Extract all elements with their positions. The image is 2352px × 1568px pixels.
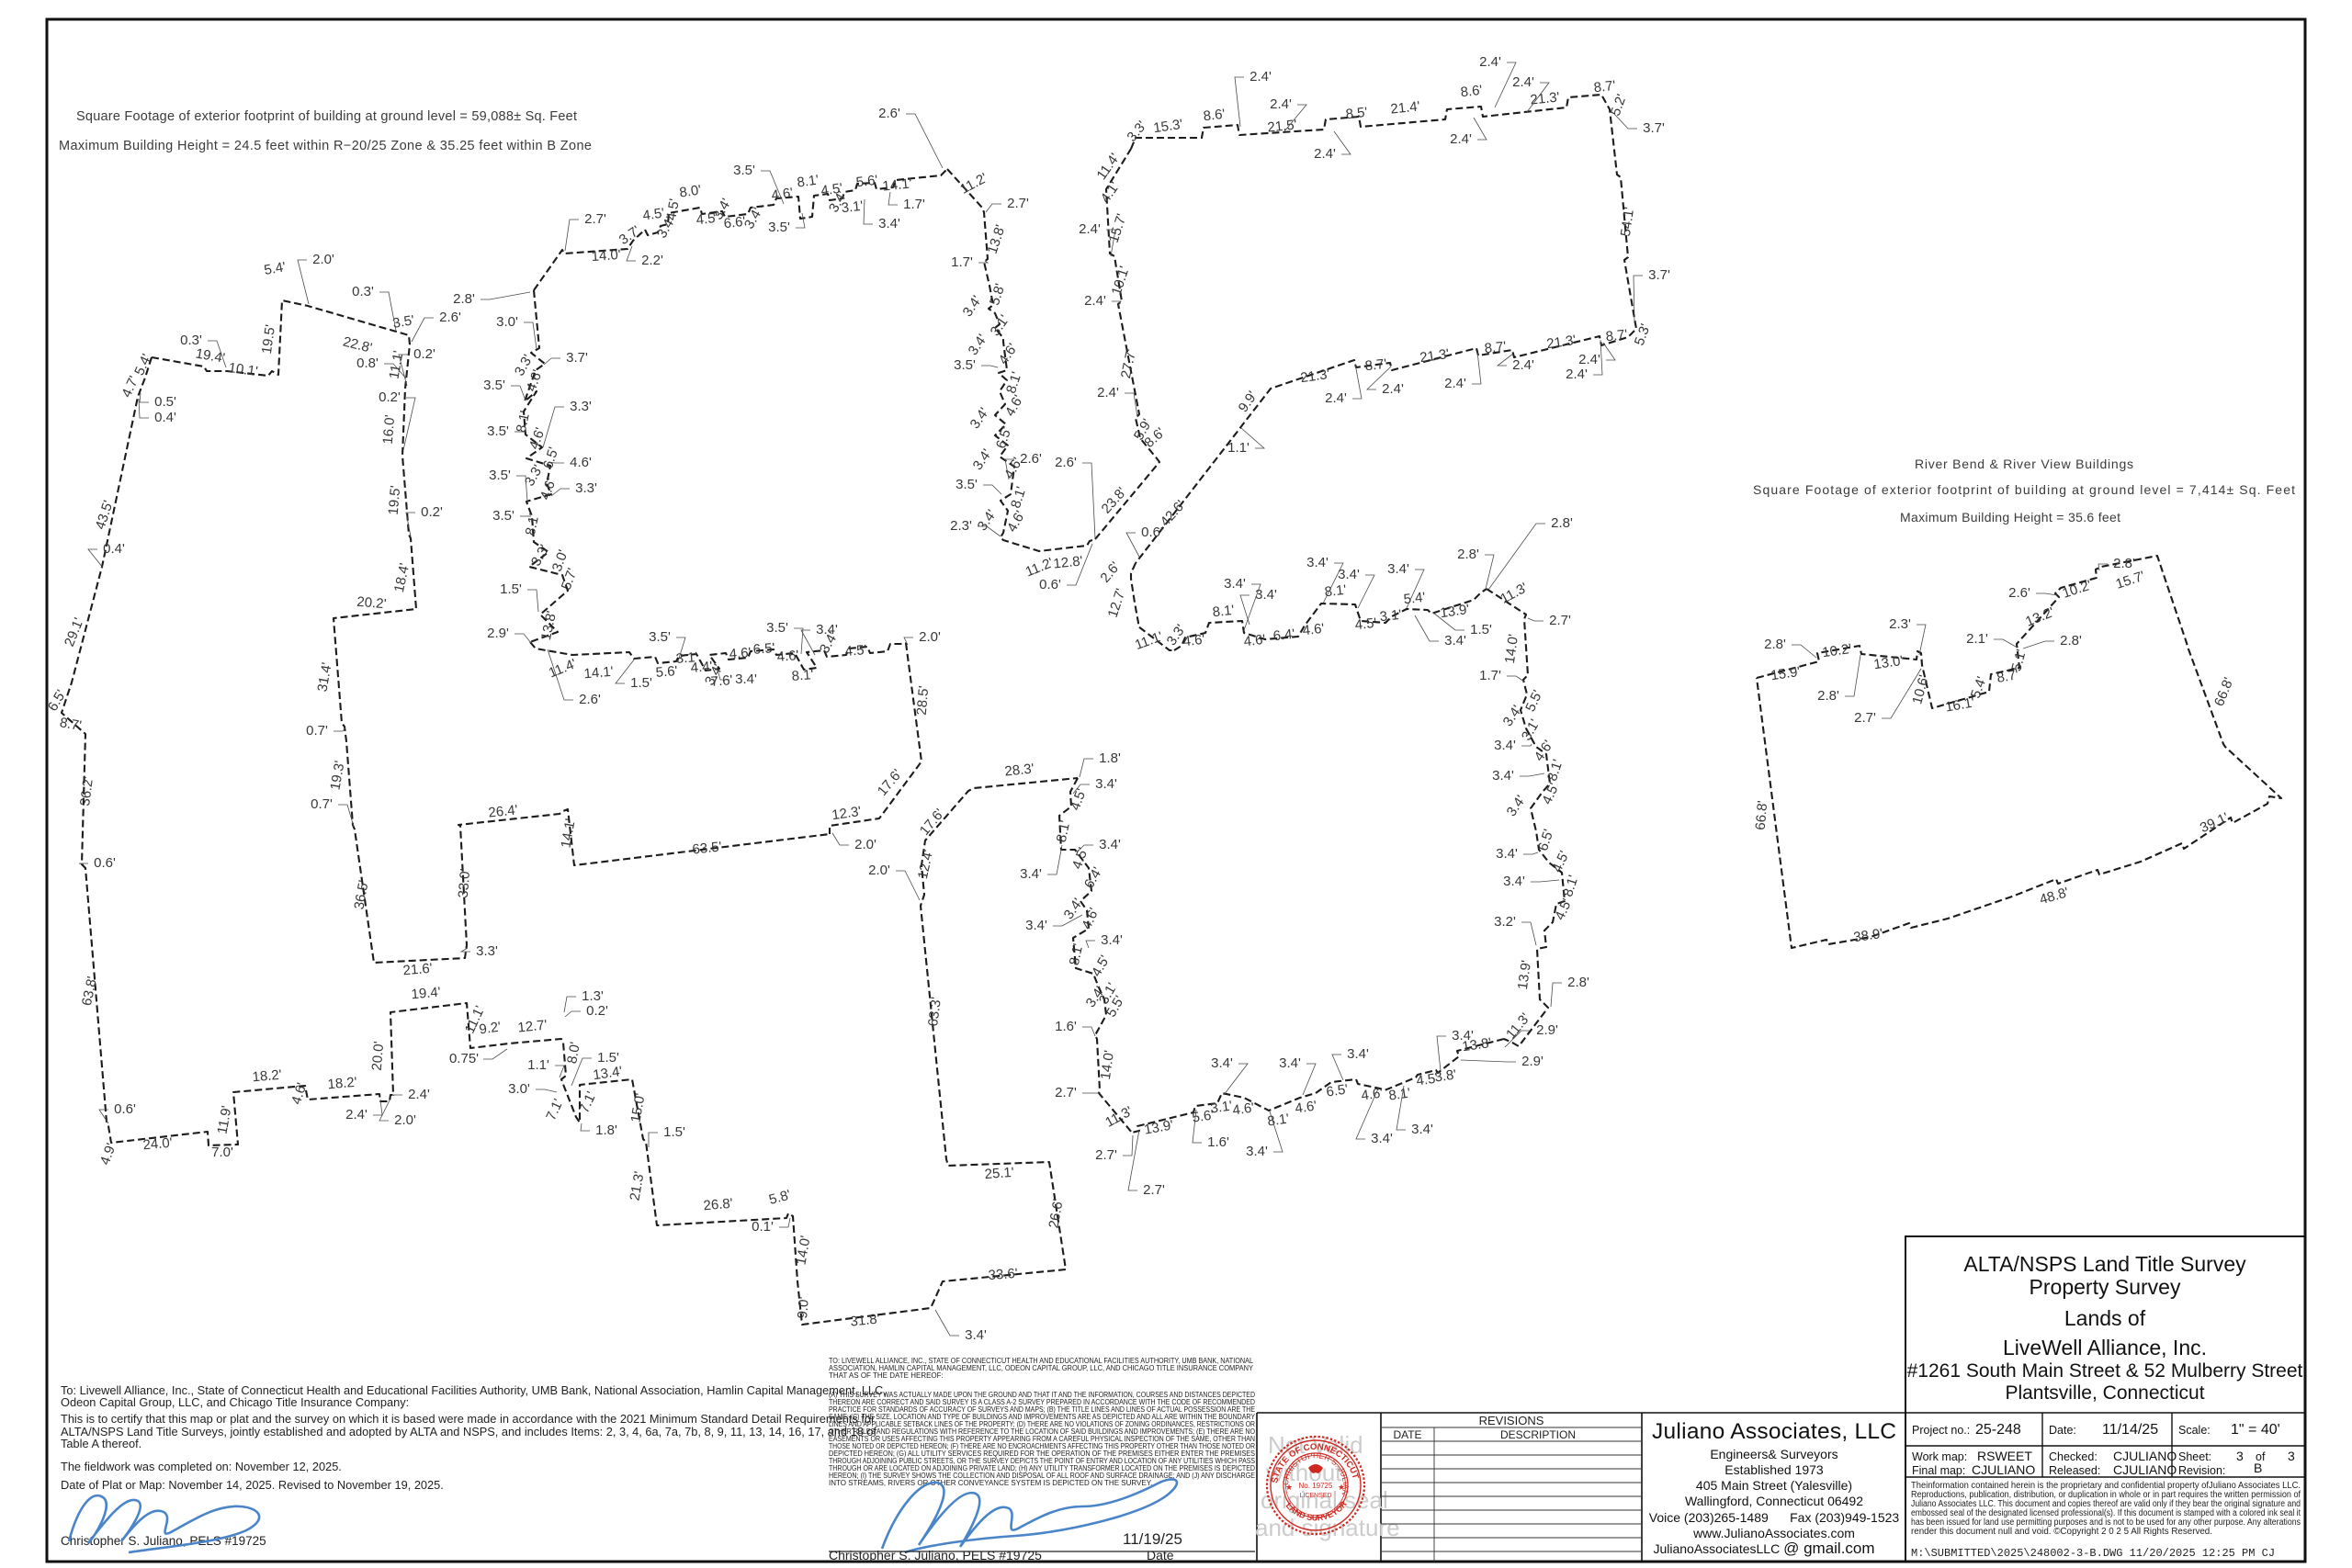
svg-text:4.6': 4.6' <box>1231 1100 1255 1118</box>
svg-text:2.4': 2.4' <box>1512 74 1534 90</box>
svg-text:1.7': 1.7' <box>903 197 925 212</box>
svg-text:63.5': 63.5' <box>692 839 723 857</box>
svg-text:JulianoAssociatesLLC @ gmail.c: JulianoAssociatesLLC @ gmail.com <box>1653 1540 1874 1557</box>
svg-text:4.6': 4.6' <box>1243 632 1266 649</box>
svg-text:2.0': 2.0' <box>854 837 876 852</box>
svg-text:Date of Plat or Map: November: Date of Plat or Map: November 14, 2025. … <box>61 1478 444 1492</box>
svg-text:3.4': 3.4' <box>878 216 900 231</box>
svg-text:2.4': 2.4' <box>408 1087 430 1102</box>
svg-text:6.5': 6.5' <box>1325 1081 1349 1100</box>
svg-text:No. 19725: No. 19725 <box>1299 1482 1333 1490</box>
svg-text:2.6': 2.6' <box>2008 585 2030 601</box>
svg-text:DESCRIPTION: DESCRIPTION <box>1500 1428 1576 1441</box>
svg-text:19.4': 19.4' <box>411 985 442 1003</box>
svg-text:1.5': 1.5' <box>597 1050 619 1066</box>
svg-text:4.6': 4.6' <box>776 648 799 665</box>
svg-text:RSWEET: RSWEET <box>1977 1449 2032 1463</box>
svg-text:3.4': 3.4' <box>1211 1055 1233 1071</box>
svg-text:3.4': 3.4' <box>965 1327 987 1343</box>
svg-text:The fieldwork was completed on: The fieldwork was completed on: November… <box>61 1460 342 1473</box>
svg-text:21.3': 21.3' <box>1530 89 1561 107</box>
svg-text:2.8': 2.8' <box>1551 515 1573 531</box>
svg-text:3.4': 3.4' <box>1494 738 1516 753</box>
svg-text:Square Footage of exterior foo: Square Footage of exterior footprint of … <box>1753 482 2295 497</box>
svg-text:8.5': 8.5' <box>1345 105 1368 122</box>
svg-text:2.4': 2.4' <box>1079 221 1101 237</box>
svg-text:Maximum Building Height = 35.6: Maximum Building Height = 35.6 feet <box>1900 510 2120 525</box>
svg-text:2.4': 2.4' <box>345 1107 367 1122</box>
svg-text:Square Footage of exterior foo: Square Footage of exterior footprint of … <box>76 109 577 124</box>
svg-text:8.1': 8.1' <box>1387 1085 1411 1103</box>
svg-text:original seal: original seal <box>1261 1486 1388 1514</box>
svg-text:8.1': 8.1' <box>1324 582 1347 600</box>
svg-text:3.4': 3.4' <box>1496 846 1518 862</box>
svg-text:0.7': 0.7' <box>311 796 333 812</box>
svg-text:4.6': 4.6' <box>570 455 592 470</box>
svg-text:2.4': 2.4' <box>1270 96 1292 112</box>
svg-text:1.6': 1.6' <box>1207 1134 1229 1150</box>
svg-text:DATE: DATE <box>1393 1428 1421 1441</box>
svg-text:2.0': 2.0' <box>312 252 334 267</box>
svg-text:ALTA/NSPS Land Title Surveys,: ALTA/NSPS Land Title Surveys, jointly es… <box>61 1425 876 1438</box>
svg-text:3.4': 3.4' <box>1306 555 1329 570</box>
svg-text:0.6': 0.6' <box>114 1101 136 1117</box>
svg-text:Voice (203)265-1489 Fax (: Voice (203)265-1489 Fax (203)949-1523 <box>1649 1510 1900 1525</box>
svg-text:2.4': 2.4' <box>1084 293 1106 309</box>
svg-text:2.7': 2.7' <box>1095 1147 1117 1163</box>
svg-text:2.4': 2.4' <box>1382 381 1404 397</box>
svg-text:3.4': 3.4' <box>1411 1122 1433 1137</box>
svg-text:2.6': 2.6' <box>1055 455 1077 470</box>
svg-text:This is to certify that this m: This is to certify that this map or plat… <box>61 1412 876 1426</box>
svg-text:3.4': 3.4' <box>1095 776 1117 792</box>
svg-text:3.4': 3.4' <box>1503 874 1525 889</box>
svg-text:3.3': 3.3' <box>476 943 498 959</box>
svg-text:3.4': 3.4' <box>1224 576 1246 592</box>
svg-text:River Bend & River View Buildi: River Bend & River View Buildings <box>1915 457 2133 471</box>
svg-text:2.0': 2.0' <box>868 863 890 878</box>
svg-text:9.0': 9.0' <box>795 1296 812 1319</box>
svg-text:★: ★ <box>1285 1483 1293 1492</box>
svg-text:2.7': 2.7' <box>1143 1182 1165 1198</box>
svg-text:0.6': 0.6' <box>1141 525 1163 540</box>
svg-text:3.4': 3.4' <box>1099 837 1121 852</box>
svg-text:3.4': 3.4' <box>1347 1046 1369 1062</box>
svg-text:Lands of: Lands of <box>2064 1306 2146 1330</box>
svg-text:5.6': 5.6' <box>855 173 878 190</box>
svg-text:2.7': 2.7' <box>1549 613 1571 628</box>
svg-text:Christopher S. Juliano, PELS #: Christopher S. Juliano, PELS #19725 <box>829 1548 1042 1562</box>
svg-text:1.3': 1.3' <box>582 988 604 1004</box>
svg-text:8.7': 8.7' <box>1593 78 1616 96</box>
svg-text:11/14/25: 11/14/25 <box>2102 1422 2158 1438</box>
svg-text:1.5': 1.5' <box>663 1124 685 1140</box>
svg-text:1" = 40': 1" = 40' <box>2231 1422 2280 1438</box>
svg-text:Project no.:: Project no.: <box>1912 1424 1970 1437</box>
svg-text:2.7': 2.7' <box>1007 196 1029 211</box>
svg-text:Wallingford, Connecticut 06492: Wallingford, Connecticut 06492 <box>1685 1494 1863 1508</box>
svg-text:Sheet:: Sheet: <box>2178 1450 2211 1463</box>
svg-text:9.2': 9.2' <box>478 1019 502 1037</box>
svg-text:2.6': 2.6' <box>439 310 461 325</box>
svg-text:8.0': 8.0' <box>678 182 702 200</box>
svg-text:28.5': 28.5' <box>914 685 933 716</box>
svg-text:2.4': 2.4' <box>1479 54 1501 70</box>
svg-text:3.4': 3.4' <box>1371 1131 1393 1146</box>
svg-text:0.1': 0.1' <box>752 1219 774 1235</box>
svg-text:3.5': 3.5' <box>954 357 976 373</box>
svg-text:Final map:: Final map: <box>1912 1464 1965 1477</box>
svg-text:2.8': 2.8' <box>1764 637 1786 652</box>
svg-text:4.5': 4.5' <box>1354 615 1377 633</box>
svg-text:2.8': 2.8' <box>1817 688 1839 704</box>
svg-text:3.4': 3.4' <box>1101 932 1123 948</box>
svg-text:2.9': 2.9' <box>1536 1022 1558 1038</box>
svg-text:Scale:: Scale: <box>2178 1424 2211 1437</box>
svg-text:Plantsville, Connecticut: Plantsville, Connecticut <box>2005 1382 2204 1404</box>
svg-text:0.2': 0.2' <box>421 504 443 520</box>
svg-text:2.0': 2.0' <box>394 1112 416 1128</box>
svg-text:2.8': 2.8' <box>1567 975 1589 990</box>
svg-text:0.6': 0.6' <box>94 855 116 871</box>
svg-text:INTO STREAMS, RIVERS OR OTHER: INTO STREAMS, RIVERS OR OTHER CONVEYANCE… <box>829 1479 1152 1487</box>
svg-text:Work map:: Work map: <box>1912 1450 1967 1463</box>
svg-text:4.6': 4.6' <box>1302 621 1325 638</box>
svg-text:Engineers& Surveyors: Engineers& Surveyors <box>1710 1447 1837 1461</box>
svg-text:12.7': 12.7' <box>517 1017 548 1035</box>
svg-text:CJULIANO: CJULIANO <box>2113 1449 2177 1463</box>
svg-text:LICENSED: LICENSED <box>1299 1493 1331 1499</box>
svg-text:16.0': 16.0' <box>380 414 399 446</box>
svg-text:3.7': 3.7' <box>566 350 588 366</box>
svg-text:1.5': 1.5' <box>1470 622 1492 637</box>
svg-text:3.8': 3.8' <box>1433 1066 1457 1085</box>
svg-text:3.3': 3.3' <box>570 399 592 414</box>
svg-text:1.1': 1.1' <box>1227 440 1249 456</box>
svg-text:11/19/25: 11/19/25 <box>1123 1530 1182 1548</box>
svg-text:2.9': 2.9' <box>1521 1054 1543 1069</box>
svg-text:Juliano Associates, LLC: Juliano Associates, LLC <box>1652 1419 1896 1444</box>
svg-text:1.8': 1.8' <box>595 1122 617 1138</box>
svg-text:1.7': 1.7' <box>1479 668 1501 683</box>
svg-text:25.1': 25.1' <box>984 1165 1014 1182</box>
svg-text:M:\SUBMITTED\2025\248002-3-B.D: M:\SUBMITTED\2025\248002-3-B.DWG 11/20/2… <box>1911 1547 2275 1560</box>
svg-text:2.4': 2.4' <box>1314 146 1336 162</box>
svg-text:Odeon Capital Group, LLC, and: Odeon Capital Group, LLC, and Chicago Ti… <box>61 1395 409 1409</box>
svg-text:21.5': 21.5' <box>1267 117 1298 135</box>
svg-text:0.6': 0.6' <box>1039 577 1061 592</box>
svg-text:3.5': 3.5' <box>487 423 509 439</box>
svg-text:Date:: Date: <box>2049 1424 2076 1437</box>
svg-text:3.3': 3.3' <box>575 480 597 496</box>
svg-text:2.1': 2.1' <box>1966 631 1988 647</box>
svg-text:2.3': 2.3' <box>950 518 972 534</box>
svg-text:2.4': 2.4' <box>1578 352 1600 367</box>
svg-text:1.5': 1.5' <box>630 675 652 691</box>
svg-text:8.7': 8.7' <box>1484 339 1507 356</box>
svg-text:#1261 South Main Street & 52 M: #1261 South Main Street & 52 Mulberry St… <box>1907 1360 2303 1382</box>
svg-text:3.5': 3.5' <box>483 378 505 393</box>
svg-text:1.5': 1.5' <box>500 581 522 597</box>
svg-text:3.2': 3.2' <box>1494 914 1516 930</box>
svg-text:3.4': 3.4' <box>1279 1055 1301 1071</box>
svg-text:Established 1973: Established 1973 <box>1724 1462 1824 1477</box>
svg-text:0.2': 0.2' <box>379 389 401 405</box>
svg-text:2.4': 2.4' <box>1325 390 1347 406</box>
svg-text:0.2': 0.2' <box>586 1003 608 1019</box>
svg-text:2.4': 2.4' <box>1249 69 1272 85</box>
svg-text:21.6': 21.6' <box>402 961 434 979</box>
svg-text:405 Main Street (Yalesville): 405 Main Street (Yalesville) <box>1696 1478 1852 1493</box>
svg-text:0.5': 0.5' <box>154 394 176 410</box>
svg-text:2.6': 2.6' <box>579 692 601 707</box>
svg-text:2.4': 2.4' <box>1566 367 1588 382</box>
svg-text:19.5': 19.5' <box>386 485 404 516</box>
svg-text:B: B <box>2254 1461 2262 1475</box>
svg-text:4.6': 4.6' <box>1294 1098 1317 1116</box>
svg-text:8.6': 8.6' <box>1203 107 1226 124</box>
svg-text:1.1': 1.1' <box>527 1057 549 1073</box>
svg-text:3: 3 <box>2288 1449 2295 1463</box>
svg-text:24.0': 24.0' <box>142 1135 174 1154</box>
svg-text:14.0': 14.0' <box>591 247 621 265</box>
svg-text:8.1': 8.1' <box>1266 1111 1290 1129</box>
svg-text:0.8': 0.8' <box>356 355 379 371</box>
svg-text:8.1': 8.1' <box>796 172 820 190</box>
svg-text:Revision:: Revision: <box>2178 1464 2225 1477</box>
svg-text:render this document null and: render this document null and void. ©Cop… <box>1911 1527 2212 1537</box>
svg-text:3.0': 3.0' <box>496 314 518 330</box>
svg-text:33.6': 33.6' <box>988 1266 1018 1283</box>
svg-text:20.0': 20.0' <box>369 1041 388 1072</box>
svg-text:2.9': 2.9' <box>487 626 509 641</box>
svg-text:3.5': 3.5' <box>733 163 755 178</box>
svg-text:Released:: Released: <box>2049 1464 2100 1477</box>
svg-text:6.5': 6.5' <box>752 640 775 658</box>
svg-text:2.7': 2.7' <box>1854 710 1876 726</box>
svg-text:3.7': 3.7' <box>1648 267 1670 283</box>
svg-text:Maximum Building Height = 24.5: Maximum Building Height = 24.5 feet with… <box>59 139 592 153</box>
svg-text:2.4': 2.4' <box>1450 131 1472 147</box>
svg-text:0.4': 0.4' <box>103 541 125 557</box>
svg-text:3.5': 3.5' <box>955 477 978 492</box>
svg-text:3.4': 3.4' <box>1492 768 1514 784</box>
svg-text:Table A thereof.: Table A thereof. <box>61 1437 141 1450</box>
svg-text:3.5': 3.5' <box>649 629 671 645</box>
svg-text:7.0': 7.0' <box>211 1145 233 1160</box>
svg-text:2.4': 2.4' <box>1512 357 1534 373</box>
svg-text:0.3': 0.3' <box>352 284 374 299</box>
svg-text:6.4': 6.4' <box>1272 626 1295 644</box>
svg-text:CJULIANO: CJULIANO <box>1972 1462 2035 1477</box>
svg-text:★: ★ <box>1338 1483 1345 1492</box>
svg-text:2.0': 2.0' <box>919 629 941 645</box>
svg-text:3.4': 3.4' <box>1020 866 1042 882</box>
svg-text:3.5': 3.5' <box>768 220 790 235</box>
svg-text:3.4': 3.4' <box>735 671 757 687</box>
svg-text:0.4': 0.4' <box>154 410 176 425</box>
svg-text:8.1': 8.1' <box>1212 603 1235 620</box>
svg-text:REVISIONS: REVISIONS <box>1479 1414 1544 1427</box>
svg-text:0.2': 0.2' <box>413 346 435 362</box>
svg-text:14.1': 14.1' <box>882 175 913 194</box>
svg-text:25-248: 25-248 <box>1975 1422 2021 1438</box>
svg-text:2.6': 2.6' <box>1020 451 1042 467</box>
svg-text:3.4': 3.4' <box>1444 633 1466 649</box>
svg-text:3.0': 3.0' <box>508 1081 530 1097</box>
svg-text:CJULIANO: CJULIANO <box>2113 1462 2177 1477</box>
svg-text:2.4': 2.4' <box>1444 376 1466 391</box>
svg-text:4.5': 4.5' <box>844 642 867 660</box>
svg-text:8.6': 8.6' <box>1460 83 1483 100</box>
svg-text:26.4': 26.4' <box>488 802 519 820</box>
svg-text:26.8': 26.8' <box>703 1196 734 1214</box>
svg-text:8.1': 8.1' <box>791 667 814 684</box>
svg-text:28.3': 28.3' <box>1004 761 1035 779</box>
svg-text:18.2': 18.2' <box>252 1067 283 1086</box>
svg-text:3.1': 3.1' <box>841 198 864 216</box>
svg-text:2.8': 2.8' <box>2060 633 2082 649</box>
svg-text:4.6': 4.6' <box>729 645 752 662</box>
svg-text:0.75': 0.75' <box>449 1051 479 1066</box>
svg-text:3.7': 3.7' <box>1643 120 1665 136</box>
svg-text:7.6': 7.6' <box>710 672 733 690</box>
svg-text:2.7': 2.7' <box>1055 1085 1077 1100</box>
svg-text:66.8': 66.8' <box>1753 800 1771 831</box>
svg-text:18.2': 18.2' <box>327 1075 358 1093</box>
svg-text:8.7': 8.7' <box>1605 327 1628 344</box>
svg-text:3.4': 3.4' <box>1025 918 1047 933</box>
svg-text:2.6': 2.6' <box>878 106 900 121</box>
svg-text:21.4': 21.4' <box>1390 98 1421 117</box>
svg-text:2.8': 2.8' <box>453 291 475 307</box>
svg-text:3.4': 3.4' <box>1387 561 1409 577</box>
svg-text:THAT AS OF THE DATE HEREOF:: THAT AS OF THE DATE HEREOF: <box>829 1371 944 1380</box>
svg-text:5.4': 5.4' <box>1403 590 1426 607</box>
svg-text:0.7': 0.7' <box>306 723 328 739</box>
svg-text:3.5': 3.5' <box>766 620 788 636</box>
svg-text:2.7': 2.7' <box>584 211 606 227</box>
svg-text:31.8': 31.8' <box>850 1311 881 1329</box>
svg-text:2.8': 2.8' <box>2113 556 2135 571</box>
svg-text:3.1': 3.1' <box>1209 1098 1233 1116</box>
svg-text:14.1': 14.1' <box>583 664 615 682</box>
svg-text:LiveWell Alliance, Inc.: LiveWell Alliance, Inc. <box>2003 1336 2207 1359</box>
svg-text:2.8': 2.8' <box>1457 547 1479 562</box>
svg-text:2.3': 2.3' <box>1889 616 1911 632</box>
svg-text:3.4': 3.4' <box>1338 567 1360 582</box>
svg-text:2.2': 2.2' <box>641 253 663 268</box>
svg-text:3.4': 3.4' <box>1246 1144 1268 1159</box>
svg-text:1.7': 1.7' <box>951 254 973 270</box>
svg-text:Checked:: Checked: <box>2049 1450 2098 1463</box>
svg-text:5.6': 5.6' <box>655 663 678 681</box>
svg-text:Date: Date <box>1147 1548 1174 1562</box>
svg-text:33.0': 33.0' <box>456 868 474 899</box>
svg-text:1.8': 1.8' <box>1099 750 1121 766</box>
svg-text:8.7': 8.7' <box>1364 356 1387 374</box>
svg-text:3.5': 3.5' <box>489 468 511 483</box>
svg-text:2.4': 2.4' <box>1097 385 1119 400</box>
svg-text:ALTA/NSPS Land Title Survey: ALTA/NSPS Land Title Survey <box>1963 1252 2246 1276</box>
svg-text:Property Survey: Property Survey <box>2030 1275 2181 1299</box>
svg-text:1.6': 1.6' <box>1055 1019 1077 1034</box>
svg-text:20.2': 20.2' <box>356 594 388 613</box>
svg-text:3.5': 3.5' <box>492 508 514 524</box>
svg-text:4.6': 4.6' <box>1182 632 1205 649</box>
svg-text:3: 3 <box>2236 1449 2244 1463</box>
svg-text:www.JulianoAssociates.com: www.JulianoAssociates.com <box>1692 1526 1855 1540</box>
svg-text:12.8': 12.8' <box>1053 553 1084 571</box>
svg-text:3.1': 3.1' <box>1379 607 1402 625</box>
svg-text:4.6': 4.6' <box>1360 1085 1384 1103</box>
